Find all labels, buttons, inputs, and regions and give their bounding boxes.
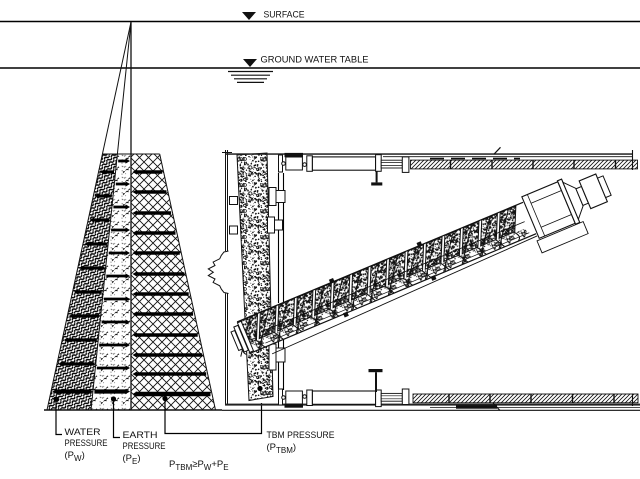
svg-text:SURFACE: SURFACE [264,10,305,21]
svg-text:PRESSURE: PRESSURE [123,441,166,452]
svg-text:GROUND WATER TABLE: GROUND WATER TABLE [261,54,369,65]
svg-text:EARTH: EARTH [123,430,158,441]
svg-text:TBM PRESSURE: TBM PRESSURE [267,430,335,441]
svg-text:WATER: WATER [65,427,101,438]
svg-text:PRESSURE: PRESSURE [65,438,108,449]
